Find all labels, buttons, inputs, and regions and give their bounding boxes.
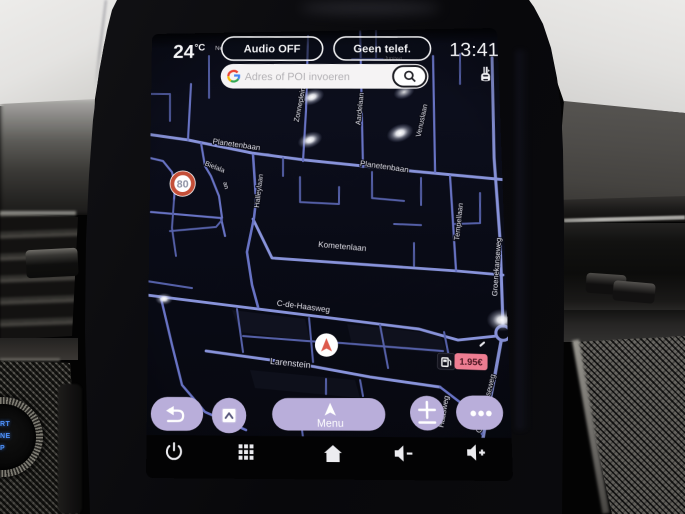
svg-text:Audio OFF: Audio OFF <box>244 43 301 55</box>
svg-text:13:41: 13:41 <box>449 39 499 60</box>
svg-text:Adres of POI invoeren: Adres of POI invoeren <box>245 72 350 83</box>
svg-text:Menu: Menu <box>317 418 344 430</box>
svg-text:Geen telef.: Geen telef. <box>353 43 411 55</box>
